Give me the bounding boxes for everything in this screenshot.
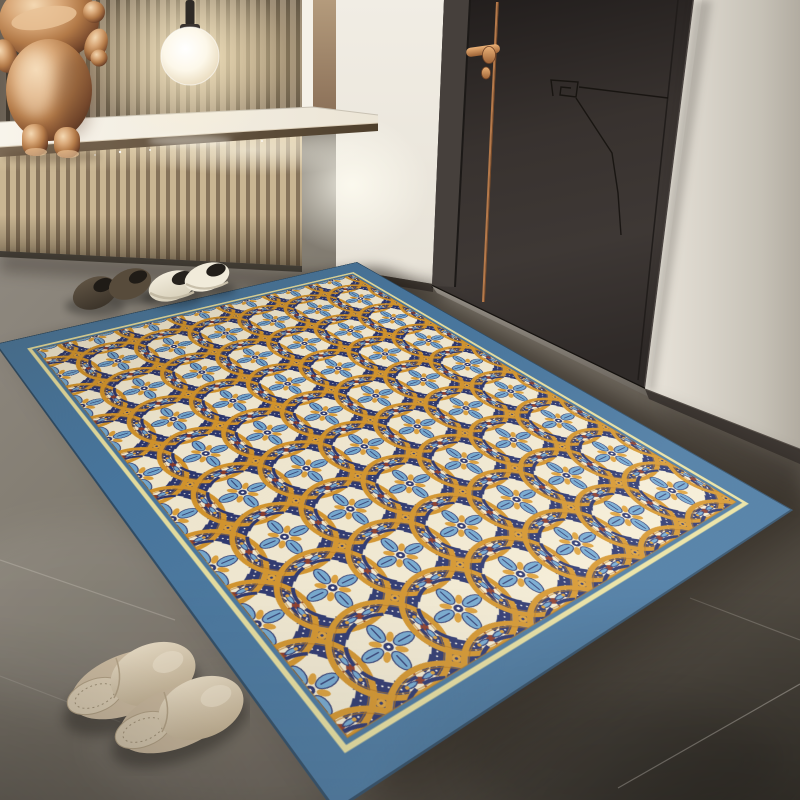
door-keyhole [482, 67, 491, 79]
wall-corner-strip [302, 0, 313, 122]
slippers-layer [40, 606, 250, 776]
scene-canvas: Entryway scene: a Moroccan-style medalli… [0, 0, 800, 800]
shoes-layer [60, 248, 250, 332]
slippers-pair [61, 630, 250, 767]
lamp-stem [186, 0, 195, 26]
wood-panel [313, 0, 336, 118]
